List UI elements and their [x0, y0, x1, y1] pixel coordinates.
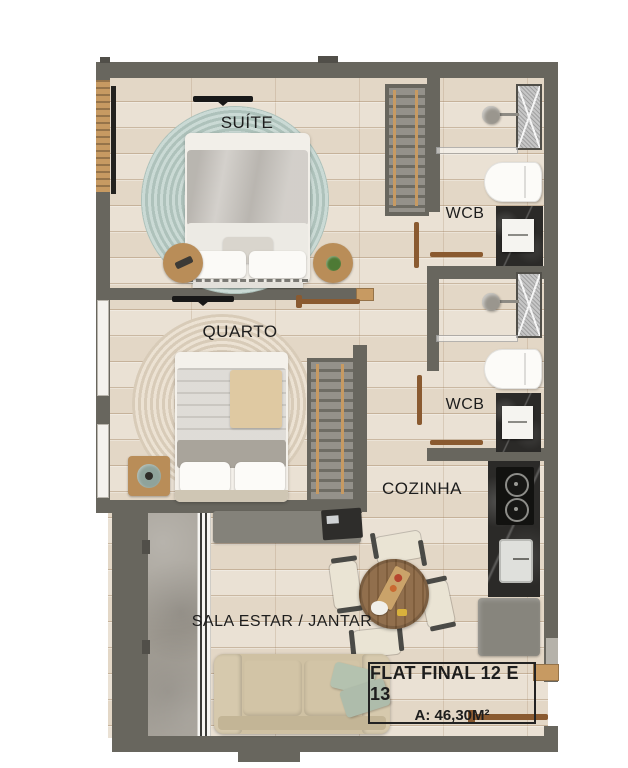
wall-bottom — [128, 736, 558, 752]
wall-hall-wcb2 — [427, 279, 439, 371]
room-label-wcb1: WCB — [446, 205, 485, 223]
wardrobe-rod — [316, 364, 319, 494]
wcb1-shower-glass — [436, 147, 518, 154]
wall-bottom-pillar — [238, 750, 300, 762]
suite-window — [96, 80, 110, 192]
table-item — [397, 609, 407, 616]
quarto-headboard — [175, 490, 288, 502]
suite-bed — [185, 133, 310, 283]
wcb1-window — [516, 84, 542, 150]
wall-top — [96, 62, 558, 78]
quarto-window — [97, 300, 109, 396]
wall-right — [544, 62, 558, 682]
pouf-knob — [145, 472, 153, 480]
balcony-floor — [148, 508, 198, 738]
wall-cap — [318, 56, 338, 63]
hall-door — [417, 375, 422, 425]
wcb1-toilet — [484, 162, 542, 202]
wardrobe-rod — [393, 90, 396, 206]
quarto-wardrobe — [307, 358, 357, 504]
quarto-pillow-right — [235, 462, 285, 493]
wcb1-shower-arm — [497, 113, 519, 116]
flat-info-box: FLAT FINAL 12 E 13 A: 46,30M² — [368, 662, 536, 724]
wcb2-shower-head — [482, 293, 500, 311]
wcb2-shower-glass — [436, 335, 518, 342]
wardrobe-rod — [341, 364, 344, 494]
nightstand-item — [174, 256, 193, 270]
wall-cap — [100, 57, 110, 63]
room-label-suite: SUÍTE — [221, 113, 274, 133]
quarto-door — [300, 299, 360, 304]
wcb1-shower-head — [482, 106, 500, 124]
wcb2-sink — [502, 406, 533, 439]
wcb2-shower-arm — [497, 300, 519, 303]
quarto-ac-unit — [172, 296, 234, 302]
wcb1-sink — [502, 219, 534, 252]
fridge — [478, 598, 540, 656]
suite-pillow-right — [249, 251, 306, 278]
kitchen-counter — [488, 461, 540, 597]
tv — [321, 508, 363, 541]
wardrobe-rod — [415, 90, 418, 206]
cooktop — [496, 467, 534, 525]
balcony-hinge — [142, 640, 150, 654]
suite-blanket — [187, 150, 308, 226]
room-label-quarto: QUARTO — [202, 322, 277, 342]
plant — [326, 256, 341, 271]
entrance-jamb — [533, 664, 559, 681]
wcb2-vanity — [496, 393, 541, 452]
flat-area: A: 46,30M² — [414, 707, 489, 724]
quarto-pillow-left — [180, 462, 230, 493]
wcb2-window — [516, 272, 542, 338]
suite-nightstand-right — [313, 243, 353, 283]
sofa-back — [218, 716, 386, 730]
quarto-bed — [175, 352, 288, 502]
suite-wardrobe — [385, 84, 429, 216]
quarto-pouf — [128, 456, 170, 496]
suite-nightstand-left — [163, 243, 203, 283]
suite-door — [430, 252, 483, 257]
floor-plan: SUÍTE QUARTO WCB — [0, 0, 628, 768]
wcb2-toilet — [484, 349, 542, 389]
sofa-cushion — [243, 660, 302, 716]
room-label-wcb2: WCB — [446, 396, 485, 414]
napkin — [371, 601, 388, 615]
balcony-hinge — [142, 540, 150, 554]
kitchen-sink — [499, 539, 533, 583]
wcb1-vanity — [496, 206, 543, 266]
wcb1-door — [414, 222, 419, 268]
suite-bench — [193, 282, 303, 288]
quarto-door-handle — [296, 295, 302, 308]
room-label-cozinha: COZINHA — [382, 479, 462, 499]
wcb2-door — [430, 440, 483, 445]
flat-title: FLAT FINAL 12 E 13 — [370, 663, 534, 705]
room-label-sala: SALA ESTAR / JANTAR — [192, 613, 373, 631]
suite-ac-unit — [193, 96, 253, 102]
quarto-window-2 — [97, 424, 109, 498]
sofa — [214, 654, 390, 734]
quarto-throw — [230, 370, 282, 428]
suite-curtain-rail — [111, 86, 116, 194]
